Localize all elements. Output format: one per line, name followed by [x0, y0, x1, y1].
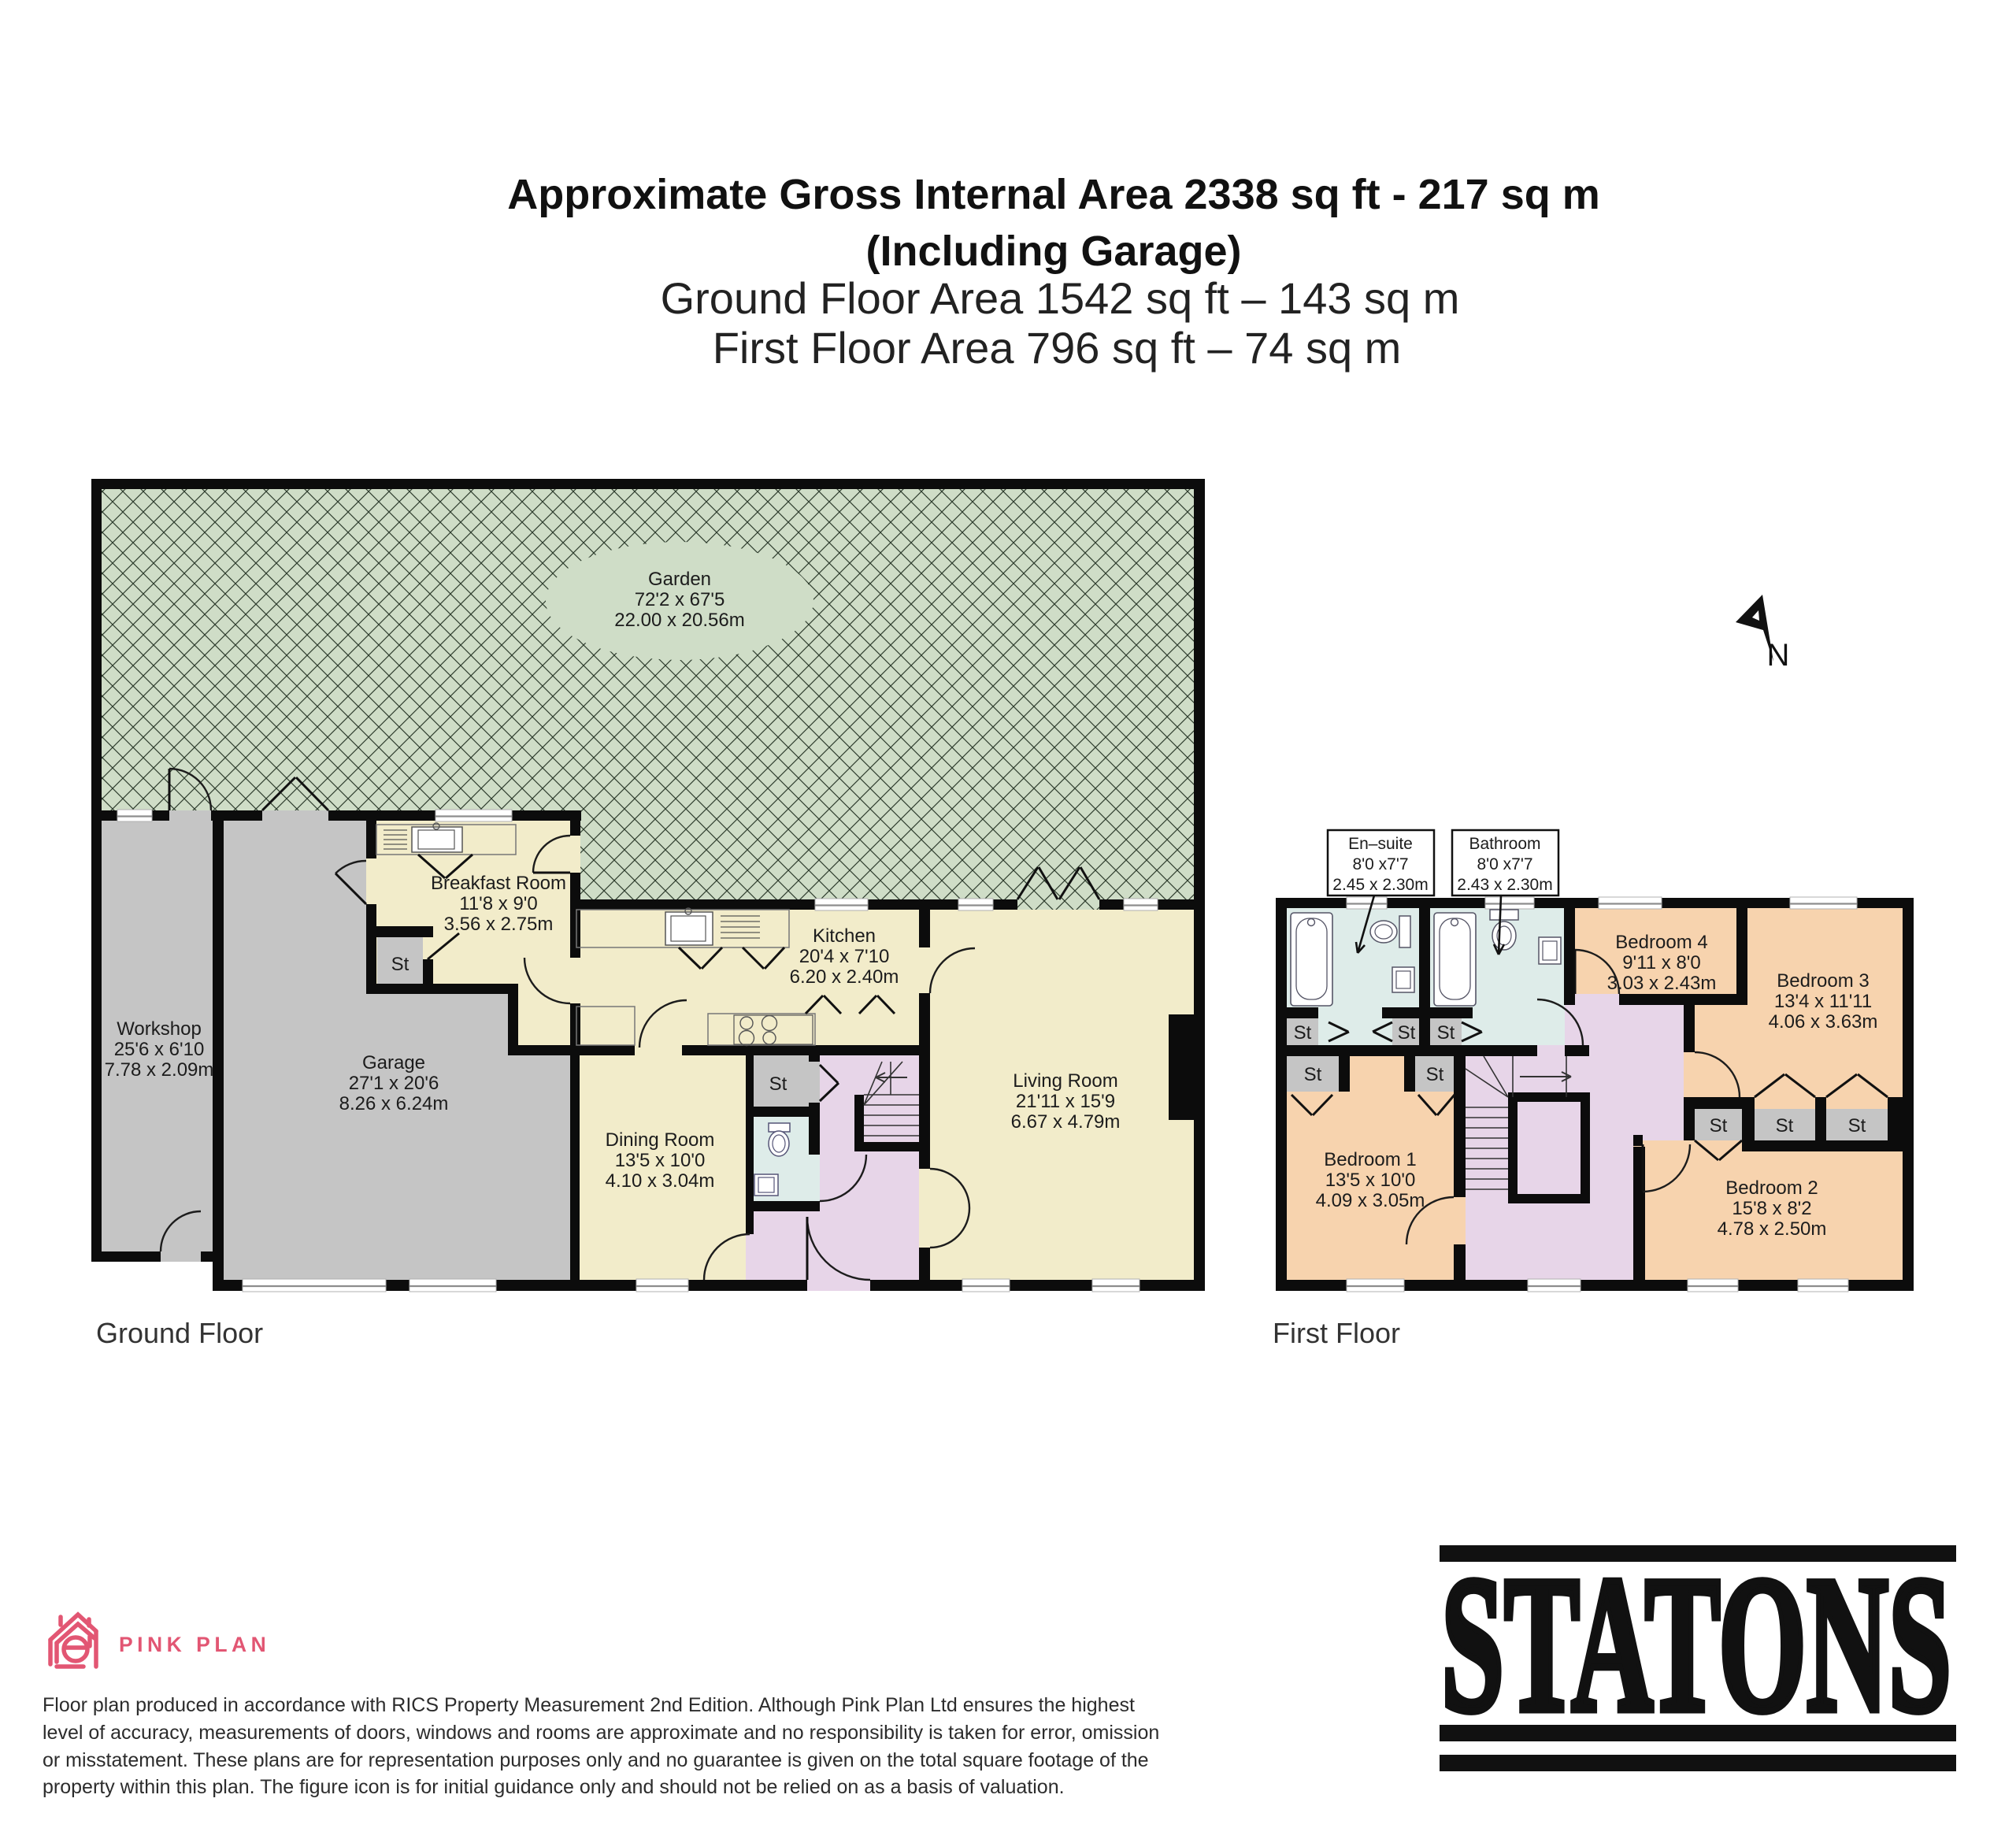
svg-text:11'8 x 9'0: 11'8 x 9'0	[459, 893, 537, 914]
svg-text:8.26 x 6.24m: 8.26 x 6.24m	[339, 1093, 449, 1114]
svg-text:Living Room: Living Room	[1013, 1070, 1117, 1092]
svg-text:72'2 x 67'5: 72'2 x 67'5	[635, 589, 725, 610]
svg-text:25'6 x 6'10: 25'6 x 6'10	[114, 1039, 205, 1060]
svg-text:6.67 x 4.79m: 6.67 x 4.79m	[1011, 1111, 1121, 1133]
svg-text:Ground Floor Area 1542 sq ft –: Ground Floor Area 1542 sq ft – 143 sq m	[661, 273, 1460, 323]
svg-text:Bedroom 1: Bedroom 1	[1324, 1149, 1416, 1170]
svg-text:Ground Floor: Ground Floor	[96, 1317, 263, 1349]
svg-text:2.43 x 2.30m: 2.43 x 2.30m	[1457, 876, 1552, 894]
svg-text:St: St	[1710, 1115, 1728, 1136]
svg-text:13'4 x 11'11: 13'4 x 11'11	[1774, 991, 1872, 1012]
svg-text:6.20 x 2.40m: 6.20 x 2.40m	[790, 966, 899, 988]
svg-text:STATONS: STATONS	[1441, 1536, 1951, 1752]
svg-text:13'5 x 10'0: 13'5 x 10'0	[1325, 1170, 1416, 1191]
svg-text:Bedroom 4: Bedroom 4	[1615, 932, 1707, 953]
svg-text:St: St	[1426, 1064, 1444, 1085]
svg-text:Approximate Gross Internal Are: Approximate Gross Internal Area 2338 sq …	[507, 171, 1600, 218]
svg-text:St: St	[1848, 1115, 1866, 1136]
svg-text:Breakfast Room: Breakfast Room	[431, 873, 566, 894]
svg-text:N: N	[1767, 638, 1790, 673]
svg-text:Bedroom 3: Bedroom 3	[1777, 970, 1869, 992]
svg-text:Kitchen: Kitchen	[813, 925, 876, 947]
svg-text:En–suite: En–suite	[1348, 835, 1413, 853]
svg-text:7.78 x 2.09m: 7.78 x 2.09m	[105, 1059, 214, 1081]
svg-text:Garage: Garage	[362, 1052, 425, 1073]
svg-text:St: St	[1398, 1022, 1416, 1044]
svg-text:St: St	[1437, 1022, 1455, 1044]
svg-text:4.78 x 2.50m: 4.78 x 2.50m	[1718, 1218, 1827, 1240]
svg-text:Bathroom: Bathroom	[1469, 835, 1540, 853]
svg-text:First Floor Area 796 sq ft – 7: First Floor Area 796 sq ft – 74 sq m	[713, 323, 1402, 373]
svg-text:Bedroom 2: Bedroom 2	[1725, 1177, 1818, 1199]
svg-text:9'11 x 8'0: 9'11 x 8'0	[1622, 952, 1700, 973]
svg-text:8'0 x7'7: 8'0 x7'7	[1352, 855, 1408, 873]
svg-text:St: St	[1294, 1022, 1312, 1044]
svg-text:Workshop: Workshop	[117, 1018, 202, 1040]
svg-text:St: St	[391, 954, 409, 975]
svg-text:Garden: Garden	[648, 569, 711, 590]
svg-text:4.10 x 3.04m: 4.10 x 3.04m	[606, 1170, 715, 1192]
svg-text:Dining Room: Dining Room	[606, 1129, 715, 1151]
svg-text:3.56 x 2.75m: 3.56 x 2.75m	[444, 914, 554, 935]
svg-text:13'5 x 10'0: 13'5 x 10'0	[615, 1150, 706, 1171]
svg-text:St: St	[1776, 1115, 1794, 1136]
svg-text:27'1 x 20'6: 27'1 x 20'6	[349, 1073, 439, 1094]
svg-text:4.06 x 3.63m: 4.06 x 3.63m	[1769, 1011, 1878, 1033]
svg-text:4.09 x 3.05m: 4.09 x 3.05m	[1316, 1190, 1425, 1211]
svg-text:22.00 x 20.56m: 22.00 x 20.56m	[614, 610, 744, 631]
svg-text:St: St	[769, 1073, 787, 1095]
svg-text:(Including Garage): (Including Garage)	[865, 228, 1241, 275]
svg-text:First Floor: First Floor	[1273, 1317, 1400, 1349]
svg-text:property within this plan. The: property within this plan. The figure ic…	[43, 1776, 1065, 1798]
svg-text:2.45 x 2.30m: 2.45 x 2.30m	[1332, 876, 1428, 894]
svg-text:St: St	[1304, 1064, 1322, 1085]
svg-text:8'0 x7'7: 8'0 x7'7	[1477, 855, 1532, 873]
svg-text:PINK PLAN: PINK PLAN	[119, 1633, 270, 1656]
svg-text:level of accuracy, measurement: level of accuracy, measurements of doors…	[43, 1722, 1159, 1744]
svg-text:20'4 x 7'10: 20'4 x 7'10	[799, 946, 890, 967]
svg-text:21'11 x 15'9: 21'11 x 15'9	[1016, 1091, 1115, 1112]
svg-text:or misstatement. These plans a: or misstatement. These plans are for rep…	[43, 1749, 1149, 1771]
svg-text:3.03 x 2.43m: 3.03 x 2.43m	[1607, 973, 1717, 994]
svg-text:Floor plan produced in accorda: Floor plan produced in accordance with R…	[43, 1694, 1135, 1716]
svg-text:15'8 x 8'2: 15'8 x 8'2	[1732, 1198, 1811, 1219]
